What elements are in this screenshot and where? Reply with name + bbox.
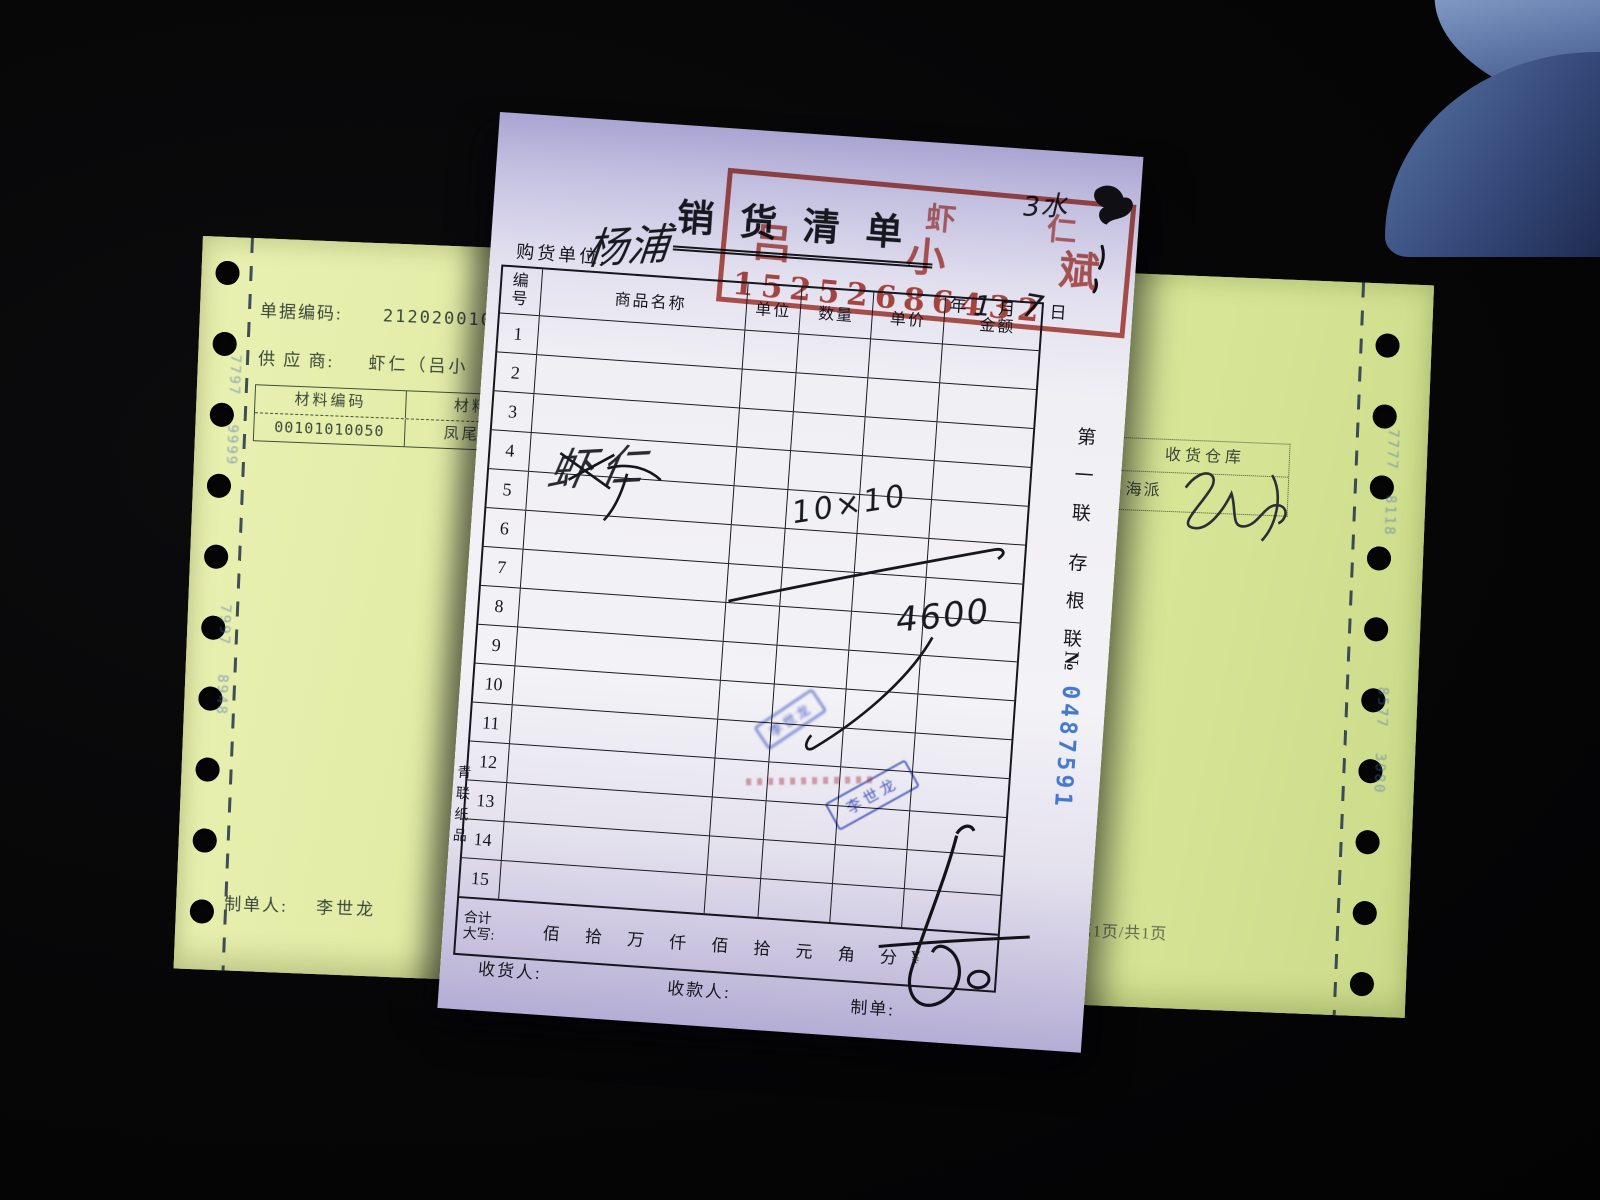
empty-cell (710, 798, 767, 840)
empty-cell (783, 529, 857, 572)
capital-unit: 拾 (753, 934, 772, 960)
empty-cell (908, 811, 1006, 856)
header-qty: 数量 (799, 288, 874, 339)
handwritten-product: 虾仁 (543, 429, 659, 499)
capital-unit: 拾 (584, 922, 603, 948)
header-amount: 金额 (943, 298, 1042, 351)
warehouse-value: 海派 (1119, 471, 1288, 516)
empty-cell (740, 370, 797, 412)
total-label: 合计 大写: (456, 910, 516, 946)
supplier-label: 供 应 商: (258, 349, 335, 371)
empty-cell (910, 772, 1008, 817)
empty-cell (743, 331, 800, 373)
row-number: 10 (473, 664, 516, 705)
empty-cell (737, 408, 794, 450)
empty-cell (732, 486, 789, 528)
capital-unit: 佰 (542, 919, 561, 945)
empty-cell (718, 681, 775, 723)
tractor-mark: 8577 (1373, 687, 1391, 729)
sales-receipt: 销货清单 购货单位: 杨浦 年 1 月 7 日 3水 虾 仁 吕小斌 15252… (437, 112, 1143, 1053)
copy-column: 第一联 存根联 (1059, 419, 1100, 660)
header-unit: 单位 (745, 284, 802, 334)
maker-line: 制单人: 李世龙 (224, 889, 377, 920)
empty-cell (866, 378, 940, 421)
tractor-mark: 7797 (225, 354, 243, 396)
empty-cell (721, 642, 778, 684)
capital-unit: 角 (837, 940, 856, 966)
row-number: 4 (489, 430, 532, 471)
capital-unit: 仟 (669, 928, 688, 954)
empty-cell (791, 412, 865, 455)
copy-number: 第一联 (1068, 419, 1100, 534)
seal-char: 斌 (1057, 237, 1102, 298)
empty-cell (927, 539, 1025, 584)
empty-cell (918, 656, 1016, 701)
no-symbol: № (1059, 650, 1082, 672)
empty-cell (913, 734, 1011, 779)
empty-cell (735, 447, 792, 489)
empty-cell (855, 534, 929, 577)
row-number: 11 (470, 703, 513, 744)
doc-code-line: 单据编码: 21202001070 (260, 296, 518, 331)
maker-label: 制单: (850, 993, 896, 1021)
empty-cell (929, 500, 1027, 545)
empty-cell (761, 840, 835, 883)
cashier-label: 收款人: (667, 974, 732, 1003)
row-number: 15 (459, 858, 502, 899)
row-number: 2 (495, 352, 538, 393)
empty-cell (729, 525, 786, 567)
empty-cell (863, 417, 937, 460)
total-label-line2: 大写: (462, 926, 515, 946)
material-code-value: 00101010050 (254, 413, 406, 446)
empty-cell (707, 836, 764, 878)
copy-type: 存根联 (1059, 545, 1091, 660)
row-number: 7 (481, 547, 524, 588)
tractor-mark: 3080 (1370, 752, 1388, 794)
supplier-line: 供 应 商: 虾仁（吕小 (258, 344, 469, 377)
tractor-mark: 8948 (213, 674, 231, 716)
header-no: 编号 (500, 267, 543, 316)
serial-line: №0487591 (1044, 650, 1086, 881)
empty-cell (780, 568, 854, 611)
tractor-mark: 9999 (223, 424, 241, 466)
empty-cell (902, 889, 1000, 934)
tractor-mark: 7997 (215, 604, 233, 646)
maker-value: 李世龙 (316, 898, 377, 919)
row-number: 1 (497, 313, 540, 354)
photo-of-receipts: { "receipt": { "title": "销货清单", "buyer_l… (0, 0, 1600, 1200)
empty-cell (705, 875, 762, 917)
empty-cell (830, 884, 904, 927)
empty-cell (937, 383, 1035, 428)
empty-cell (833, 845, 907, 888)
empty-cell (758, 879, 832, 922)
empty-cell (935, 422, 1033, 467)
currency-symbol: ¥ (910, 947, 920, 969)
warehouse-box: 收货仓库 海派 (1118, 437, 1291, 517)
empty-cell (940, 344, 1038, 389)
buyer-handwriting: 杨浦 (583, 210, 673, 277)
empty-cell (778, 607, 852, 650)
serial-number: 0487591 (1049, 684, 1084, 810)
row-number: 9 (476, 625, 519, 666)
empty-cell (844, 690, 918, 733)
empty-cell (797, 334, 871, 377)
seal-char: 吕 (750, 209, 795, 270)
doc-code-label: 单据编码: (260, 301, 343, 323)
empty-cell (794, 373, 868, 416)
empty-cell (868, 339, 942, 382)
tractor-mark: 8118 (1381, 495, 1399, 537)
row-number: 3 (492, 391, 535, 432)
header-price: 单价 (871, 293, 946, 344)
empty-cell (726, 564, 783, 606)
empty-cell (932, 461, 1030, 506)
row-number: 8 (478, 586, 521, 627)
empty-cell (724, 603, 781, 645)
tractor-mark: 7777 (1383, 429, 1401, 471)
empty-cell (847, 651, 921, 694)
capital-unit: 分 (879, 943, 898, 969)
seal-char: 小 (904, 223, 949, 284)
row-number: 6 (484, 508, 527, 549)
row-number: 12 (467, 741, 510, 782)
maker-label: 制单人: (224, 894, 288, 916)
empty-cell (916, 695, 1014, 740)
capital-units: 佰拾万仟佰拾元角分 (542, 919, 898, 969)
blue-cloth (1385, 52, 1600, 257)
capital-unit: 万 (626, 925, 645, 951)
supplier-value: 虾仁（吕小 (368, 354, 469, 377)
capital-unit: 佰 (711, 931, 730, 957)
row-number: 5 (486, 469, 529, 510)
empty-cell (775, 646, 849, 689)
empty-cell (905, 850, 1003, 895)
capital-unit: 元 (795, 937, 814, 963)
receiver-label: 收货人: (477, 955, 542, 984)
